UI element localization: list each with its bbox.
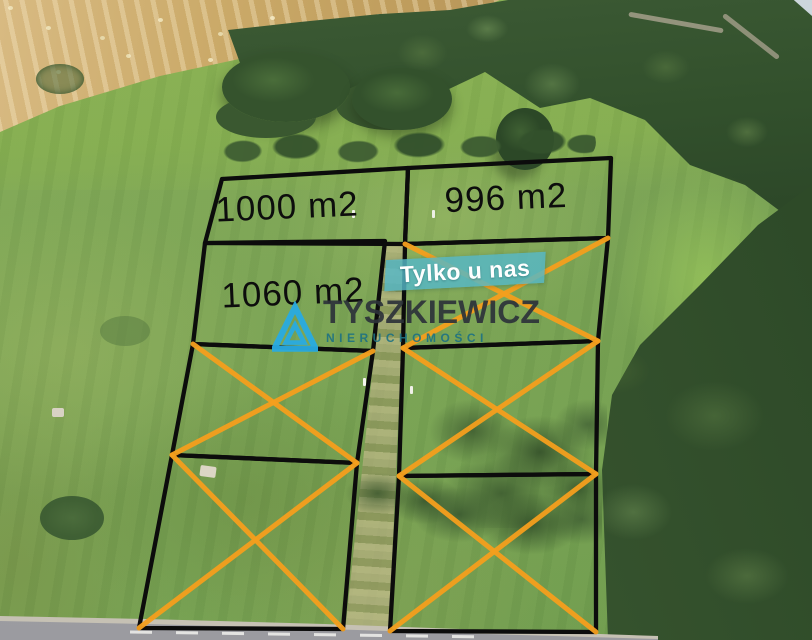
agency-logo: TYSZKIEWICZ NIERUCHOMOŚCI bbox=[272, 296, 540, 355]
aerial-photo: 1000 m2996 m21060 m2 Tylko u nas TYSZKIE… bbox=[0, 0, 812, 640]
exclusive-badge-label: Tylko u nas bbox=[399, 255, 531, 289]
agency-logo-text: TYSZKIEWICZ NIERUCHOMOŚCI bbox=[323, 296, 540, 345]
sold-cross-left-row4 bbox=[139, 463, 357, 628]
agency-name: TYSZKIEWICZ bbox=[323, 296, 540, 328]
plot-boundary-top-right bbox=[405, 158, 611, 244]
triangle-mountain-icon bbox=[272, 301, 318, 355]
plot-boundary-top-left bbox=[205, 168, 408, 244]
sold-cross-left-row3 bbox=[172, 351, 373, 455]
agency-subtitle: NIERUCHOMOŚCI bbox=[326, 331, 540, 345]
sold-cross-left-row4 bbox=[172, 455, 343, 629]
